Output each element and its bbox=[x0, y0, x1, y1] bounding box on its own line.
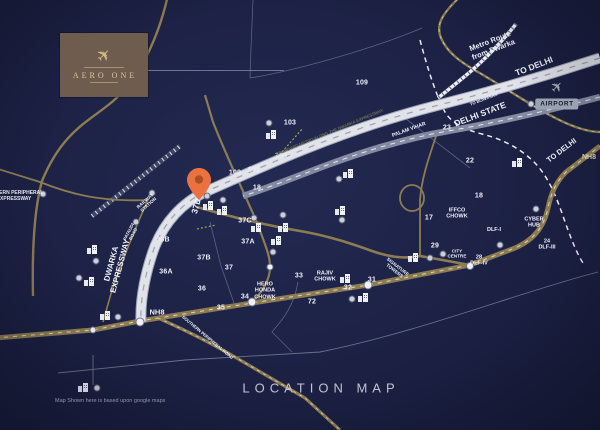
sector-label-109: 109 bbox=[356, 80, 368, 87]
roundabout bbox=[90, 327, 97, 334]
landmark-circle-icon bbox=[336, 176, 343, 183]
brand-name: AERO ONE bbox=[73, 71, 137, 80]
landmark-circle-icon bbox=[76, 275, 83, 282]
landmark-circle-icon bbox=[497, 242, 504, 249]
sector-label-72: 72 bbox=[308, 299, 316, 306]
building-icon bbox=[270, 232, 282, 250]
sector-label-22: 22 bbox=[466, 158, 474, 165]
road-boundary-4 bbox=[272, 282, 298, 352]
sector-label-36: 36 bbox=[198, 286, 206, 293]
map-label-nh8-left: NH8 bbox=[149, 309, 164, 318]
sector-label-31: 31 bbox=[368, 277, 376, 284]
map-label-city-centre: CITYCENTRE bbox=[448, 249, 467, 260]
landmark-circle-icon bbox=[533, 206, 540, 213]
building-icon bbox=[357, 289, 369, 307]
building-icon bbox=[250, 219, 262, 237]
sector-label-36a: 36A bbox=[159, 269, 172, 276]
landmark-circle-icon bbox=[94, 385, 101, 392]
landmark-circle-icon bbox=[280, 212, 287, 219]
location-map: 10910310410010118232218172936B37C37A37B3… bbox=[0, 0, 600, 430]
landmark-circle-icon bbox=[440, 251, 447, 258]
road-interchange-road bbox=[420, 133, 437, 256]
map-label-western-peripheral-expressway-name: WESTERN PERIPHERALEXPRESSWAY bbox=[0, 191, 43, 203]
roundabout bbox=[136, 318, 145, 327]
sector-label-101: 101 bbox=[248, 167, 260, 174]
building-icon bbox=[86, 241, 98, 259]
landmark-circle-icon bbox=[115, 314, 122, 321]
logo-divider bbox=[84, 67, 124, 68]
landmark-circle-icon bbox=[349, 296, 356, 303]
map-label-iffco-chowk: IFFCOCHOWK bbox=[446, 208, 467, 221]
map-label-rajiv-chowk: RAJIVCHOWK bbox=[314, 271, 335, 284]
sector-label-100: 100 bbox=[229, 170, 241, 177]
landmark-circle-icon bbox=[266, 120, 273, 127]
location-pin[interactable] bbox=[187, 168, 211, 200]
landmark-circle-icon bbox=[427, 255, 434, 262]
sector-label-32: 32 bbox=[344, 285, 352, 292]
road-boundary-1 bbox=[250, 0, 253, 78]
road-boundary-3 bbox=[210, 222, 234, 303]
building-icon bbox=[511, 154, 523, 172]
brand-logo: ✈ AERO ONE bbox=[60, 33, 148, 97]
sector-label-37: 37 bbox=[225, 265, 233, 272]
sector-label-37a: 37A bbox=[241, 239, 254, 246]
landmark-circle-icon bbox=[220, 197, 227, 204]
sector-label-23: 23 bbox=[443, 125, 451, 132]
landmark-circle-icon bbox=[528, 101, 535, 108]
sector-label-34: 34 bbox=[241, 294, 249, 301]
map-label-nh8-right: NH8 bbox=[582, 154, 596, 162]
road-southern-peripheral-road-dash bbox=[158, 318, 340, 430]
sector-label-37c: 37C bbox=[238, 218, 251, 225]
building-icon bbox=[99, 307, 111, 325]
building-icon bbox=[216, 202, 228, 220]
map-label-cyber-hub: CYBERHUB bbox=[524, 217, 543, 230]
map-label-dlf-1: DLF-I bbox=[487, 227, 501, 233]
sector-label-33: 33 bbox=[295, 273, 303, 280]
sector-label-29: 29 bbox=[431, 243, 439, 250]
logo-divider bbox=[90, 82, 118, 83]
sector-label-18: 18 bbox=[475, 193, 483, 200]
building-icon bbox=[265, 126, 277, 144]
building-icon bbox=[83, 273, 95, 291]
sector-label-37b: 37B bbox=[197, 255, 210, 262]
landmark-circle-icon bbox=[339, 217, 346, 224]
road-southern-peripheral-road bbox=[158, 318, 340, 430]
map-label-dlf-4: 28DLF-IV bbox=[470, 255, 488, 268]
roundabout bbox=[267, 264, 274, 271]
building-icon bbox=[77, 379, 89, 397]
map-label-hero-honda-chowk: HEROHONDACHOWK bbox=[254, 281, 275, 300]
sector-label-103: 103 bbox=[284, 120, 296, 127]
landmark-circle-icon bbox=[270, 249, 277, 256]
building-icon bbox=[342, 165, 354, 183]
sector-label-18: 18 bbox=[253, 185, 261, 192]
location-map-title: LOCATION MAP bbox=[242, 381, 399, 396]
road-site-boundary-green-2 bbox=[197, 225, 216, 229]
sector-label-36b: 36B bbox=[156, 237, 169, 244]
airport-badge: AIRPORT bbox=[535, 99, 578, 110]
map-label-dlf-3: 24DLF-III bbox=[538, 239, 555, 252]
plane-icon: ✈ bbox=[93, 44, 115, 66]
building-icon bbox=[407, 249, 419, 267]
map-disclaimer: Map Shown here is based upon google maps bbox=[55, 398, 165, 404]
logo-pointer-line bbox=[148, 70, 284, 71]
sector-label-35: 35 bbox=[217, 305, 225, 312]
sector-label-17: 17 bbox=[425, 215, 433, 222]
road-sector-road-north bbox=[205, 95, 270, 300]
landmark-circle-icon bbox=[93, 258, 100, 265]
